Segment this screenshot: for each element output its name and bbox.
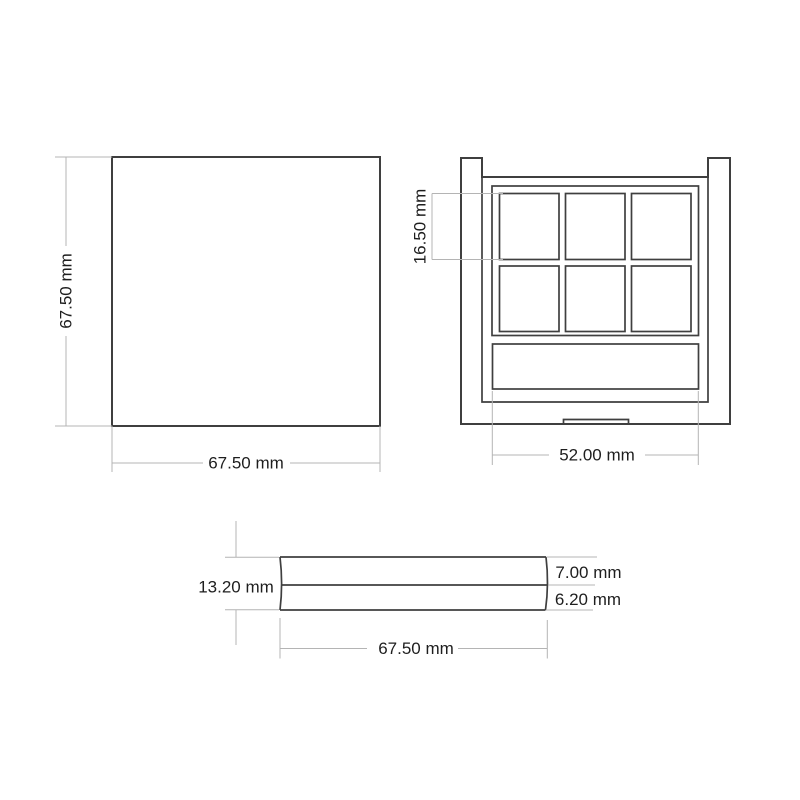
dim-label-tray-width: 52.00 mm [559,446,635,465]
dim-label-total-height: 13.20 mm [198,577,274,596]
dim-label-case-width: 67.50 mm [378,639,454,658]
dim-label-base-thickness: 6.20 mm [555,590,621,609]
dim-lid-width: 67.50 mm [112,426,380,473]
side-view [280,557,548,610]
side-right-edge [546,557,548,610]
pan [632,266,692,332]
drawing-svg: 67.50 mm 67.50 mm [0,0,800,800]
dim-pan-height: 16.50 mm [411,189,504,265]
lid-top-view [112,157,380,426]
pan [500,194,560,260]
lid-outline [112,157,380,426]
dim-label-lid-width: 67.50 mm [208,454,284,473]
pan [566,266,626,332]
dim-lid-thickness: 7.00 mm [547,557,622,585]
pan [566,194,626,260]
dim-label-lid-thickness: 7.00 mm [555,563,621,582]
dim-case-width: 67.50 mm [280,618,547,659]
technical-drawing-page: 67.50 mm 67.50 mm [0,0,800,800]
lower-tray [493,344,699,389]
pan-grid-frame [492,186,699,336]
pan [500,266,560,332]
dim-total-height: 13.20 mm [198,521,279,645]
case-inner-wall [482,177,708,402]
side-left-edge [280,557,282,610]
dim-label-pan-height: 16.50 mm [411,189,430,265]
dim-lid-height: 67.50 mm [55,157,112,426]
case-outline [461,158,730,424]
dim-base-thickness: 6.20 mm [546,590,621,610]
pan [632,194,692,260]
base-inner-view [461,158,730,424]
dim-label-lid-height: 67.50 mm [57,253,76,329]
